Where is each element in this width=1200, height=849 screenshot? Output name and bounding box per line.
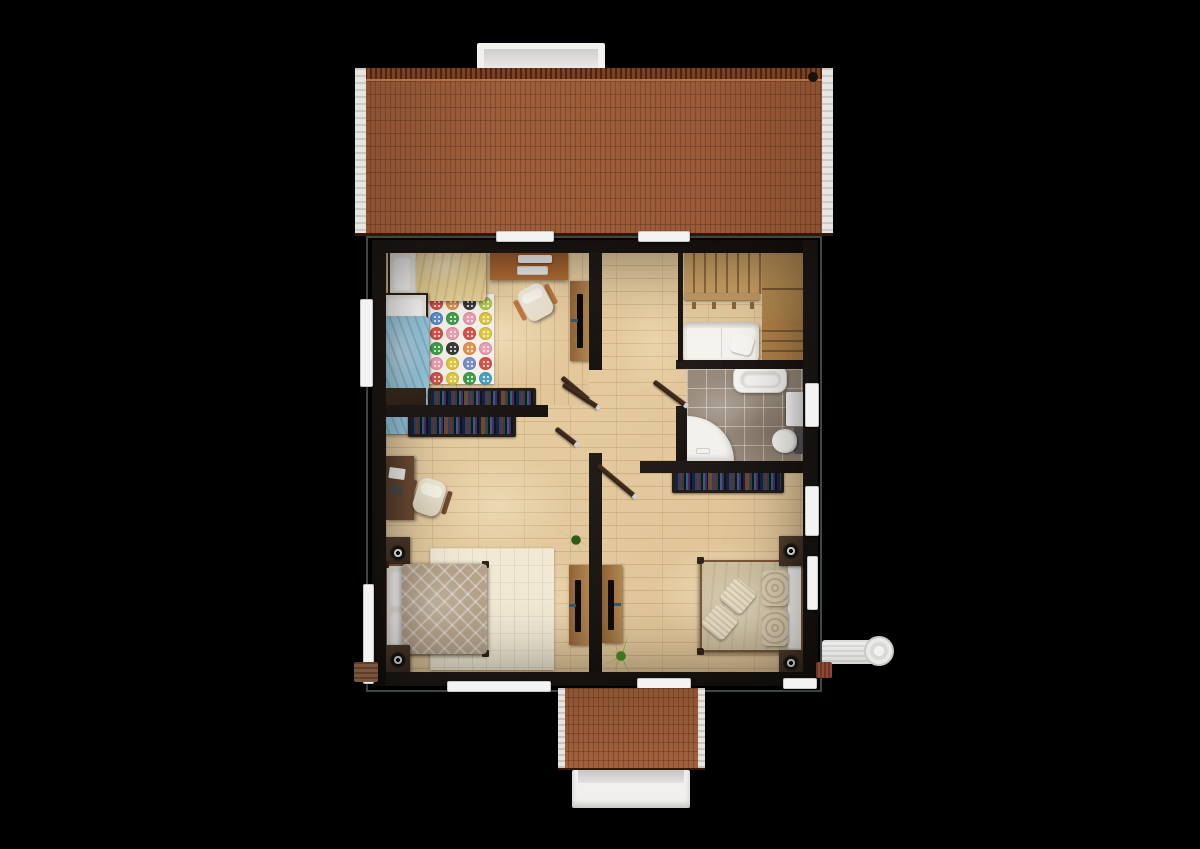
porch-step <box>578 770 684 783</box>
kids-keyboard <box>517 266 548 275</box>
ac-pipe-unit <box>816 662 832 678</box>
wall-kids-hallway <box>589 252 602 370</box>
bench-sofa <box>683 322 759 362</box>
chimney-opening <box>484 49 598 68</box>
window-sill-top-right <box>638 231 690 242</box>
ac-unit-left <box>354 662 378 682</box>
laptop <box>388 467 405 480</box>
ac-fan <box>864 636 894 666</box>
kids-tv-stand <box>571 319 578 322</box>
floor-plan-render <box>0 0 1200 849</box>
wall-bedroom-hall <box>640 461 803 473</box>
wall-kids-study <box>386 405 548 417</box>
wall-outer-left <box>372 240 386 686</box>
rug-button-yellow <box>479 312 492 325</box>
speaker <box>390 652 406 668</box>
window-sill-top-left <box>496 231 554 242</box>
roof-vent-dot <box>808 72 818 82</box>
porch-roof <box>558 688 705 770</box>
tv-stand <box>569 604 576 607</box>
main-roof <box>355 68 833 236</box>
porch-trim-left <box>558 688 565 768</box>
wall-outer-bottom <box>372 672 818 686</box>
speaker <box>390 545 406 561</box>
rug-button-pink <box>446 327 459 340</box>
railing-post <box>712 302 716 309</box>
speaker <box>783 543 799 559</box>
staircase-upper-flight <box>684 252 762 294</box>
window-sill-left-upper <box>360 299 373 387</box>
rug-button-yellow <box>446 372 459 385</box>
roof-trim-left <box>355 68 366 233</box>
rug-button-pink <box>430 357 443 370</box>
rug-button-yellow <box>479 327 492 340</box>
rug-button-blue <box>430 312 443 325</box>
speaker <box>783 655 799 671</box>
bathtub <box>733 365 787 393</box>
porch-trim-right <box>698 688 705 768</box>
rug-button-red <box>430 327 443 340</box>
wall-outer-right <box>803 240 818 686</box>
rug-button-charcoal <box>446 342 459 355</box>
railing-post <box>732 302 736 309</box>
rug-button-red <box>430 372 443 385</box>
window-sill-right-bedroom <box>807 556 818 610</box>
staircase-landing <box>762 252 803 322</box>
rug-button-red <box>463 327 476 340</box>
wall-bathroom-left <box>676 406 687 461</box>
window-sill-bottom-left <box>447 681 551 692</box>
rug-button-green <box>446 312 459 325</box>
roof-ridge <box>355 68 833 81</box>
kids-monitor <box>518 255 552 263</box>
damask-pillow <box>762 610 788 646</box>
patterned-duvet <box>402 564 487 654</box>
desk-pad <box>390 486 402 494</box>
damask-pillow <box>762 570 788 606</box>
bathtub-basin <box>740 371 781 388</box>
rug-button-red <box>479 357 492 370</box>
bathroom-cabinet <box>786 392 804 426</box>
porch-steps <box>572 770 690 808</box>
button-rug <box>428 294 494 384</box>
railing-post <box>750 302 754 309</box>
rug-button-yellow <box>446 357 459 370</box>
rug-button-teal <box>479 372 492 385</box>
kids-bed-top-pillow <box>392 256 412 292</box>
bookshelf-study <box>408 414 516 437</box>
rug-button-orange <box>463 342 476 355</box>
railing-post <box>692 302 696 309</box>
rug-button-pink <box>463 312 476 325</box>
rug-button-green <box>463 372 476 385</box>
window-sill-right-middle <box>805 486 819 536</box>
window-sill-right-bathroom <box>805 383 819 427</box>
window-sill-bottom-right <box>783 678 817 689</box>
stair-railing <box>684 293 760 300</box>
toilet <box>772 429 797 453</box>
rug-button-periwinkle <box>463 357 476 370</box>
rug-button-pink <box>479 342 492 355</box>
wall-stairs-edge <box>678 252 683 362</box>
tv-stand <box>614 603 621 606</box>
staircase-lower-flight <box>762 322 803 360</box>
wall-central <box>589 453 602 672</box>
mattress-edge <box>788 564 801 648</box>
rug-button-green <box>430 342 443 355</box>
wall-bathroom-top <box>676 360 803 369</box>
roof-trim-right <box>822 68 833 233</box>
